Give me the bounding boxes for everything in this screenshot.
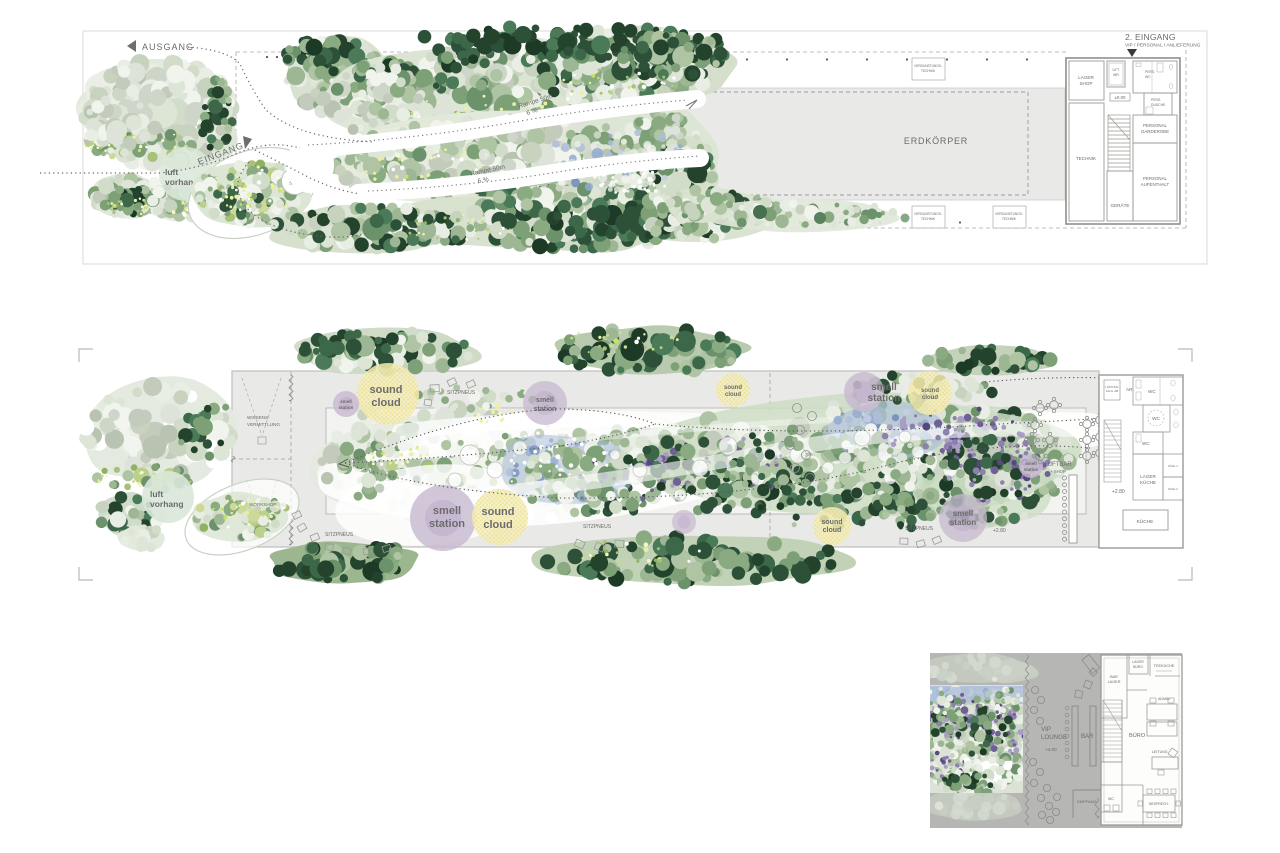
svg-text:TECHNIK: TECHNIK [1002,217,1017,221]
svg-text:LAGER: LAGER [1078,75,1094,80]
svg-text:SHOP: SHOP [1079,81,1092,86]
svg-text:luft: luft [165,167,178,177]
svg-text:ERDKÖRPER: ERDKÖRPER [904,136,968,146]
svg-text:GERÄTE: GERÄTE [1111,202,1130,208]
svg-text:DUSCHE: DUSCHE [1151,103,1166,107]
svg-text:WC: WC [1145,75,1151,79]
svg-text:PERSONAL: PERSONAL [1143,176,1167,181]
svg-text:cloud: cloud [483,519,512,531]
svg-text:GARDEROBE: GARDEROBE [1141,129,1169,134]
svg-text:cloud: cloud [823,527,842,534]
svg-text:sound: sound [482,506,515,518]
svg-text:LIFT: LIFT [1113,68,1120,72]
svg-text:±0.00: ±0.00 [1115,95,1127,100]
svg-text:2. EINGANG: 2. EINGANG [1125,32,1176,42]
svg-text:SITZPNEUS: SITZPNEUS [447,390,476,396]
svg-text:station: station [429,518,465,530]
svg-text:AUSGANG: AUSGANG [142,42,194,52]
svg-text:WISSENS-: WISSENS- [247,415,270,420]
svg-text:VERDUNSTUNGS-: VERDUNSTUNGS- [914,212,942,216]
svg-text:smell: smell [1025,461,1037,466]
svg-text:+2.80: +2.80 [993,528,1006,534]
svg-text:vorhang: vorhang [150,499,184,509]
svg-text:WR: WR [1113,73,1119,77]
svg-text:WORKSHOP: WORKSHOP [249,502,276,507]
svg-text:TECHNIK: TECHNIK [921,217,936,221]
svg-text:station: station [534,406,557,413]
svg-text:station: station [1024,467,1039,472]
svg-text:station: station [950,518,976,527]
svg-text:smell: smell [340,399,352,404]
svg-text:VERDUNSTUNGS-: VERDUNSTUNGS- [995,212,1023,216]
svg-text:SITZPNEUS: SITZPNEUS [325,532,354,538]
svg-text:TECHNIK: TECHNIK [921,69,936,73]
svg-text:PERSONAL: PERSONAL [1143,123,1167,128]
svg-text:sound: sound [370,384,403,396]
svg-text:cloud: cloud [922,395,938,401]
svg-text:luft: luft [150,489,163,499]
svg-text:VERDUNSTUNGS-: VERDUNSTUNGS- [914,64,942,68]
svg-text:TECHNIK: TECHNIK [1076,156,1097,161]
svg-text:VERMITTLUNG: VERMITTLUNG [247,422,280,427]
svg-text:AUFENTHALT: AUFENTHALT [1141,182,1170,187]
svg-text:smell: smell [871,382,897,393]
svg-text:cloud: cloud [725,392,741,398]
svg-text:VIP / PERSONAL / ANLIEFERUNG: VIP / PERSONAL / ANLIEFERUNG [1125,43,1201,49]
svg-text:smell: smell [536,397,554,404]
svg-text:station: station [868,393,901,404]
svg-text:station: station [339,405,354,410]
svg-text:cloud: cloud [371,397,400,409]
svg-text:smell: smell [953,509,973,518]
svg-text:sound: sound [822,519,843,526]
svg-text:sound: sound [921,388,939,394]
svg-text:smell: smell [433,505,461,517]
svg-text:PERS.: PERS. [1151,98,1161,102]
svg-text:PERS.: PERS. [1145,70,1155,74]
svg-text:sound: sound [724,385,742,391]
